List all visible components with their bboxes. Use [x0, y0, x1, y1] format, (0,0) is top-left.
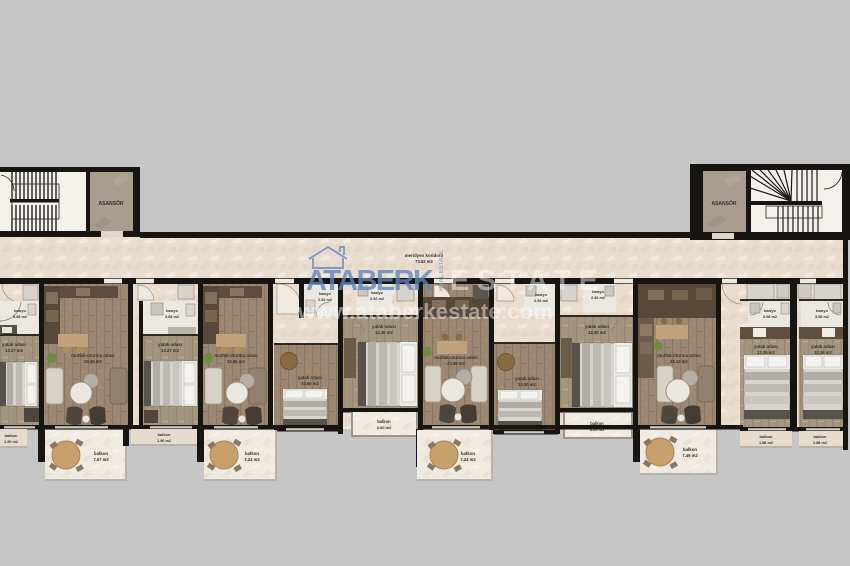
svg-text:yatak odası: yatak odası	[811, 344, 835, 349]
svg-text:banyo: banyo	[14, 308, 26, 313]
svg-text:yatak odası: yatak odası	[298, 375, 322, 380]
svg-text:balkon: balkon	[94, 451, 108, 456]
svg-text:1.88 m2: 1.88 m2	[759, 441, 773, 445]
svg-text:banyo: banyo	[166, 308, 178, 313]
svg-text:13.27 m2: 13.27 m2	[161, 348, 179, 353]
svg-text:12.26 m2: 12.26 m2	[757, 350, 775, 355]
svg-text:20.35 m2: 20.35 m2	[84, 359, 102, 364]
svg-text:yatak odası: yatak odası	[372, 324, 396, 329]
svg-text:25.13 m2: 25.13 m2	[670, 359, 688, 364]
svg-text:yatak odası: yatak odası	[585, 324, 609, 329]
svg-text:12.30 m2: 12.30 m2	[588, 330, 606, 335]
svg-text:balkon: balkon	[683, 447, 697, 452]
svg-text:3.98 m2: 3.98 m2	[815, 315, 829, 319]
svg-text:ATABERK: ATABERK	[306, 265, 434, 297]
svg-text:yatak odası: yatak odası	[515, 376, 539, 381]
svg-text:1.90 m2: 1.90 m2	[157, 439, 171, 443]
svg-text:meridyen koridoru: meridyen koridoru	[405, 253, 444, 258]
svg-text:www.ataberkestate.com: www.ataberkestate.com	[297, 299, 553, 324]
svg-text:12.26 m2: 12.26 m2	[814, 350, 832, 355]
svg-text:mutfak-oturma odası: mutfak-oturma odası	[657, 353, 700, 358]
svg-text:3.68 m2: 3.68 m2	[13, 315, 27, 319]
svg-text:10.50 m2: 10.50 m2	[518, 382, 536, 387]
svg-text:13.27 m2: 13.27 m2	[5, 348, 23, 353]
svg-text:1.88 m2: 1.88 m2	[813, 441, 827, 445]
svg-text:ASANSÖR: ASANSÖR	[98, 200, 123, 207]
svg-text:balkon: balkon	[760, 434, 773, 439]
svg-text:7.49 m2: 7.49 m2	[682, 453, 698, 458]
svg-text:yatak odası: yatak odası	[2, 342, 26, 347]
svg-text:73.62 m2: 73.62 m2	[415, 259, 433, 264]
svg-text:mutfak-oturma odası: mutfak-oturma odası	[434, 355, 477, 360]
svg-text:banyo: banyo	[764, 308, 776, 313]
svg-text:ESTATE: ESTATE	[450, 265, 602, 297]
svg-text:mutfak-oturma odası: mutfak-oturma odası	[214, 353, 257, 358]
svg-text:yatak odası: yatak odası	[158, 342, 182, 347]
svg-text:balkon: balkon	[5, 433, 18, 438]
svg-text:1.90 m2: 1.90 m2	[4, 440, 18, 444]
svg-text:3.00 m2: 3.00 m2	[377, 425, 392, 430]
svg-text:REAL ESTATE: REAL ESTATE	[439, 250, 445, 291]
svg-text:balkon: balkon	[158, 432, 171, 437]
svg-text:7.57 m2: 7.57 m2	[93, 457, 109, 462]
svg-text:banyo: banyo	[816, 308, 828, 313]
svg-text:balkon: balkon	[377, 419, 391, 424]
svg-text:10.50 m2: 10.50 m2	[301, 381, 319, 386]
svg-text:ASANSÖR: ASANSÖR	[711, 200, 736, 207]
svg-text:7.24 m2: 7.24 m2	[244, 457, 260, 462]
svg-text:3.98 m2: 3.98 m2	[763, 315, 777, 319]
svg-text:balkon: balkon	[461, 451, 475, 456]
svg-text:3.68 m2: 3.68 m2	[165, 315, 179, 319]
svg-text:yatak odası: yatak odası	[754, 344, 778, 349]
svg-text:mutfak-oturma odası: mutfak-oturma odası	[71, 353, 114, 358]
svg-text:23.98 m2: 23.98 m2	[447, 361, 465, 366]
svg-text:22.96 m2: 22.96 m2	[227, 359, 245, 364]
svg-text:balkon: balkon	[814, 434, 827, 439]
svg-text:12.30 m2: 12.30 m2	[375, 330, 393, 335]
svg-text:balkon: balkon	[245, 451, 259, 456]
svg-text:7.24 m2: 7.24 m2	[460, 457, 476, 462]
